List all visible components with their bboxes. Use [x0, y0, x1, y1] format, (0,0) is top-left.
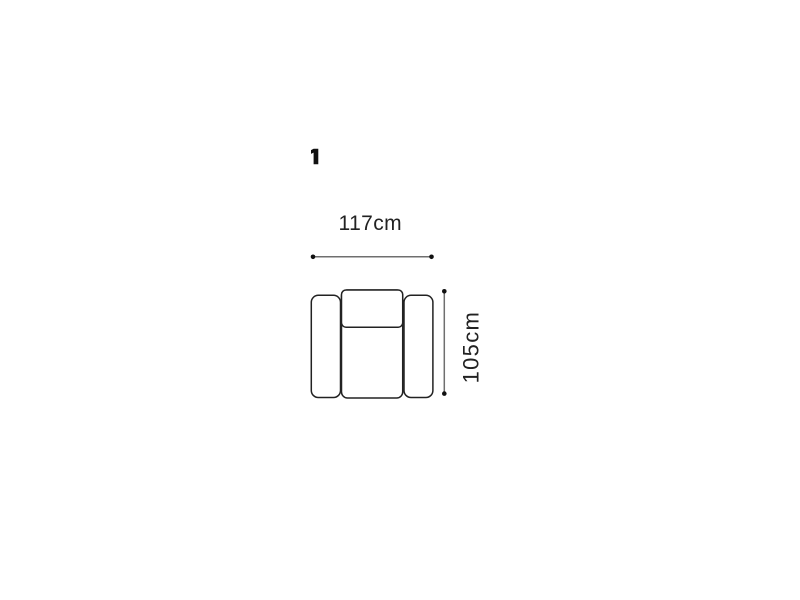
svg-text:117cm: 117cm [339, 212, 402, 235]
svg-text:105cm: 105cm [458, 311, 483, 384]
